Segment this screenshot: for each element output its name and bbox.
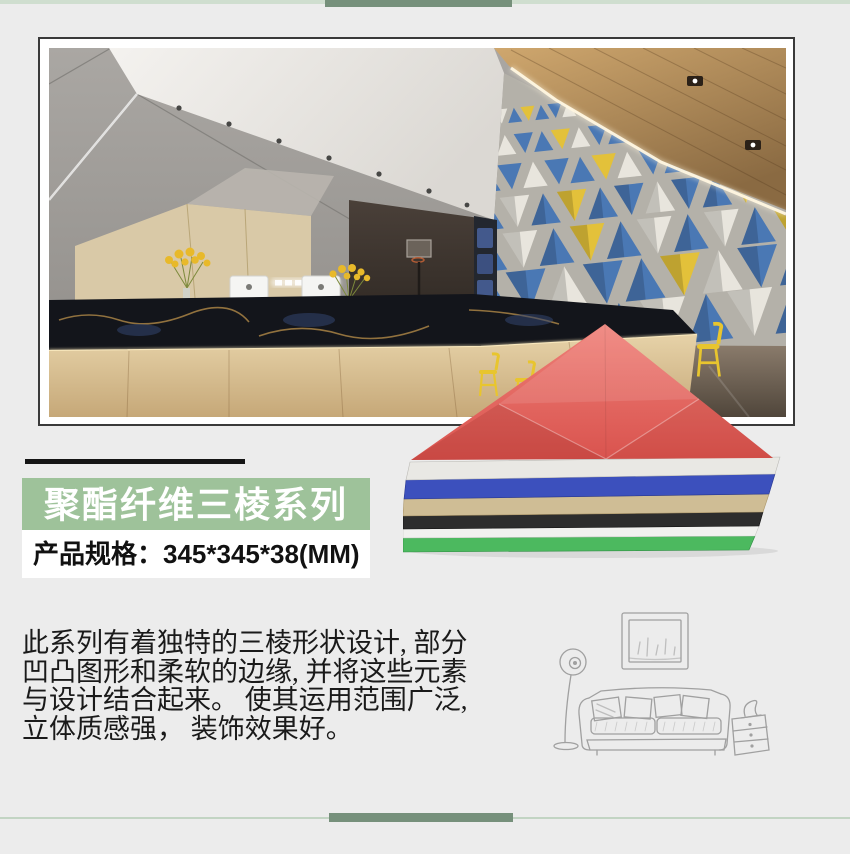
description-line: 凹凸图形和柔软的边缘, 并将这些元素 [22, 658, 492, 687]
product-stack [403, 320, 795, 560]
sketch-picture-frame [622, 613, 688, 669]
series-banner: 聚酯纤维三棱系列 [22, 478, 370, 530]
product-description: 此系列有着独特的三棱形状设计, 部分 凹凸图形和柔软的边缘, 并将这些元素 与设… [22, 629, 492, 743]
description-line: 此系列有着独特的三棱形状设计, 部分 [22, 629, 492, 658]
sketch-sofa [579, 688, 730, 755]
sketch-side-table [732, 701, 769, 755]
title-accent-bar [25, 459, 245, 464]
description-line: 与设计结合起来。 使其运用范围广泛, [22, 686, 492, 715]
top-accent-bar [325, 0, 512, 7]
green-panel [403, 536, 755, 552]
description-line: 立体质感强， 装饰效果好。 [22, 715, 492, 744]
series-title: 聚酯纤维三棱系列 [22, 478, 370, 531]
page-background: 聚酯纤维三棱系列 产品规格：345*345*38(MM) 此系列有着独特的三棱形… [0, 0, 850, 854]
spec-box: 产品规格：345*345*38(MM) [22, 530, 370, 578]
spec-text: 产品规格：345*345*38(MM) [22, 530, 370, 579]
red-triangle-panel [411, 324, 773, 460]
interior-sketch [545, 592, 780, 764]
bottom-accent-bar [329, 813, 513, 822]
